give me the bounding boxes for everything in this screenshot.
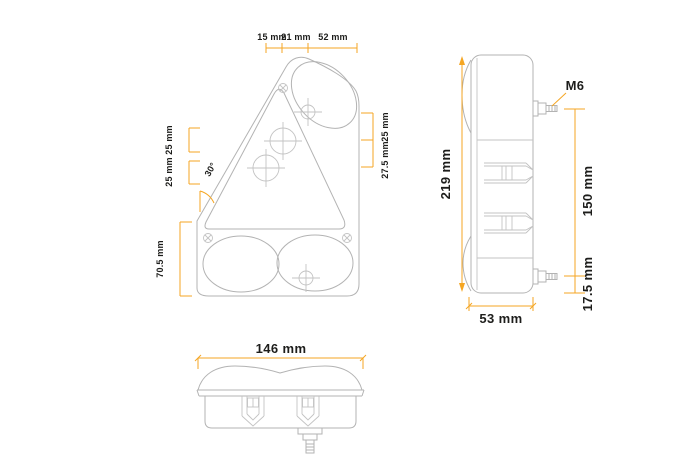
dim-label-left-25mm-upper: 25 mm bbox=[164, 125, 174, 155]
trailer-lamp-technical-drawing: 15 mm 21 mm 52 mm 25 mm 25 mm 70.5 mm 25… bbox=[0, 0, 700, 467]
dim-label-21mm: 21 mm bbox=[281, 32, 311, 42]
dim-label-53mm: 53 mm bbox=[479, 311, 522, 326]
dim-label-right-25mm: 25 mm bbox=[380, 112, 390, 142]
dim-label-27-5mm: 27.5 mm bbox=[380, 141, 390, 178]
dim-label-70-5mm: 70.5 mm bbox=[155, 240, 165, 277]
dim-label-17-5mm: 17.5 mm bbox=[580, 257, 595, 312]
technical-drawing-page: 15 mm 21 mm 52 mm 25 mm 25 mm 70.5 mm 25… bbox=[0, 0, 700, 467]
page-background bbox=[0, 0, 700, 467]
bolt-label-m6: M6 bbox=[566, 78, 585, 93]
dim-label-52mm: 52 mm bbox=[318, 32, 348, 42]
dim-label-146mm: 146 mm bbox=[256, 341, 307, 356]
dim-label-150mm: 150 mm bbox=[580, 166, 595, 217]
dim-label-219mm: 219 mm bbox=[438, 149, 453, 200]
dim-label-left-25mm-lower: 25 mm bbox=[164, 157, 174, 187]
